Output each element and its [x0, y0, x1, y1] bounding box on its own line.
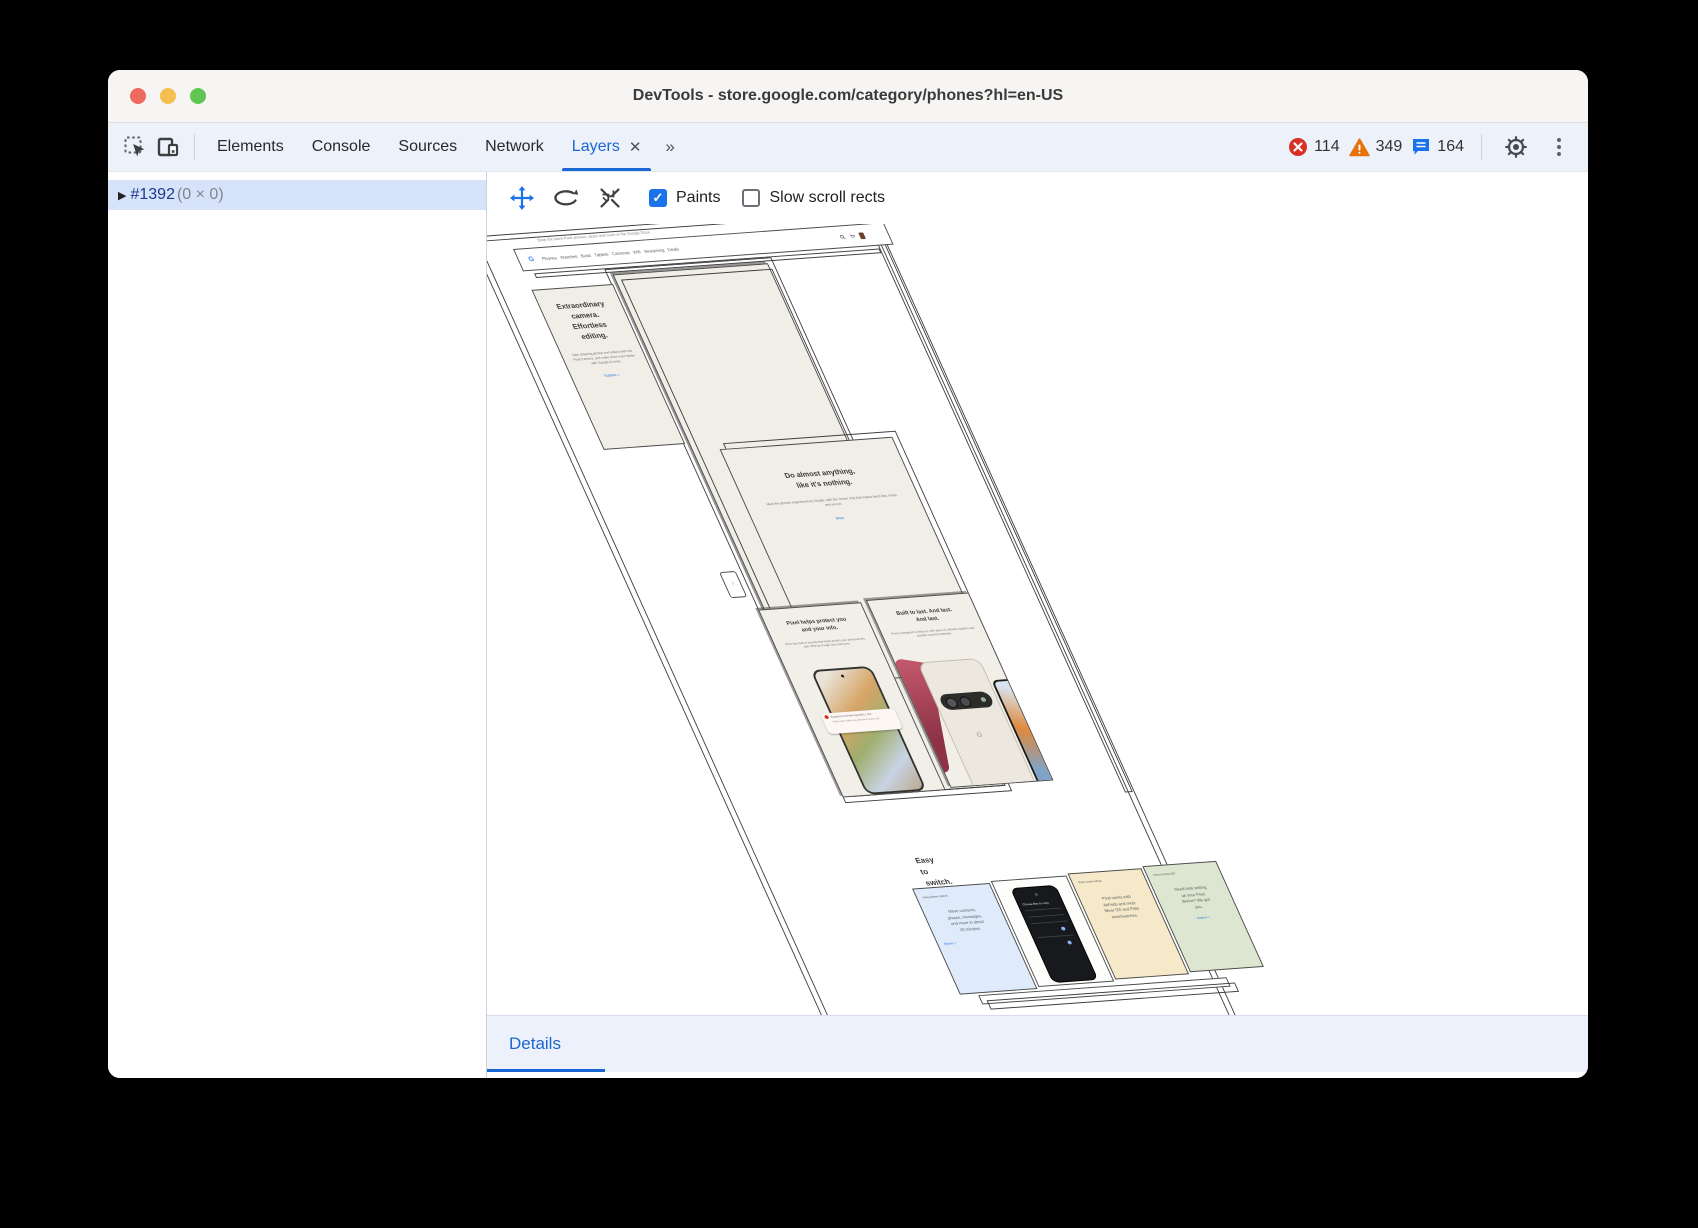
- bottom-strip: [487, 1072, 1588, 1078]
- help-card-link[interactable]: Explore >: [1173, 913, 1235, 921]
- warning-count: 349: [1376, 138, 1403, 156]
- more-tabs-icon[interactable]: »: [655, 137, 686, 157]
- tab-sources[interactable]: Sources: [384, 123, 471, 171]
- avatar: [858, 232, 866, 239]
- devtools-toolbar: Elements Console Sources Network Layers …: [108, 123, 1588, 172]
- setup-screen-title: Choose files to copy: [1022, 900, 1060, 906]
- toolbar-separator-2: [1481, 134, 1482, 160]
- layer-node-id: #1392: [130, 186, 175, 204]
- camera-card-heading: Extraordinary camera. Effortless editing…: [545, 298, 631, 343]
- navbar-links: Phones Watches Buds Tablets Cameras Wifi…: [541, 246, 680, 261]
- built-card-heading: Built to last. And last. And last.: [880, 605, 972, 627]
- tab-console[interactable]: Console: [298, 123, 385, 171]
- switch-card-link[interactable]: Explore >: [943, 937, 1009, 945]
- help-card-label: Here to help 24/7: [1152, 869, 1214, 877]
- message-count: 164: [1437, 138, 1464, 156]
- error-icon: [1288, 137, 1308, 157]
- google-g-logo: G: [976, 732, 984, 739]
- window-title: DevTools - store.google.com/category/pho…: [108, 87, 1588, 105]
- message-icon: [1411, 137, 1431, 157]
- details-bar: Details: [487, 1015, 1588, 1072]
- camera-card-body: Take amazing photos and videos with the …: [567, 348, 641, 367]
- pan-mode-icon[interactable]: [505, 181, 539, 215]
- layer-node-size: (0 × 0): [177, 186, 224, 204]
- inspect-element-icon[interactable]: [118, 130, 152, 164]
- accessories-card-body: Pixel works with AirPods and most Wear O…: [1085, 893, 1156, 922]
- reset-view-icon[interactable]: [593, 181, 627, 215]
- expand-caret-icon[interactable]: ▶: [118, 189, 126, 202]
- camera-lens-icon: [958, 696, 973, 707]
- cart-icon: [849, 234, 856, 239]
- anything-card-body: Meet the phones engineered by Google, wi…: [765, 493, 901, 512]
- anything-card-heading: Do almost anything, like it's nothing.: [751, 463, 892, 493]
- kebab-menu-icon[interactable]: [1542, 130, 1576, 164]
- device-toolbar-icon[interactable]: [152, 130, 186, 164]
- warning-icon: [1349, 138, 1370, 157]
- anything-card-link[interactable]: More: [773, 512, 907, 525]
- accessories-card-label: Pixel, meet extras: [1078, 876, 1140, 884]
- layers-view-toolbar: ✓ Paints Slow scroll rects: [487, 172, 1588, 224]
- details-tab-underline: [487, 1069, 605, 1072]
- settings-gear-icon[interactable]: [1499, 130, 1533, 164]
- tab-layers[interactable]: Layers ✕: [558, 123, 656, 171]
- panel-tabs: Elements Console Sources Network Layers …: [203, 123, 687, 171]
- switch-card-body: Move contacts, photos, messages, and mor…: [929, 906, 1004, 936]
- camera-lens-icon: [944, 697, 959, 708]
- rotate-mode-icon[interactable]: [549, 181, 583, 215]
- paints-label: Paints: [676, 189, 720, 207]
- help-card-body: Need help setting up your Pixel device? …: [1159, 884, 1230, 913]
- layers-3d-view[interactable]: Shop the latest Pixel phones, deals and …: [487, 224, 1588, 1015]
- message-badge[interactable]: 164: [1411, 137, 1464, 157]
- slow-scroll-label: Slow scroll rects: [769, 189, 885, 207]
- warning-dot-icon: [824, 715, 830, 719]
- slow-scroll-checkbox[interactable]: [742, 189, 760, 207]
- google-logo: G: [527, 256, 535, 263]
- tab-details[interactable]: Details: [509, 1016, 561, 1072]
- chat-icon: ?: [731, 582, 736, 588]
- layers-tree-sidebar: ▶ #1392 (0 × 0): [108, 172, 487, 1078]
- tab-network[interactable]: Network: [471, 123, 558, 171]
- camera-card-link[interactable]: Explore >: [577, 371, 647, 380]
- active-tab-underline: [562, 168, 652, 171]
- search-icon: [839, 234, 846, 239]
- protect-card-heading: Pixel helps protect you and your info.: [772, 615, 864, 637]
- protect-card-body: Pixel has built-in security that helps p…: [782, 636, 871, 651]
- camera-flash-icon: [980, 697, 987, 702]
- layer-tree-node-selected[interactable]: ▶ #1392 (0 × 0): [108, 180, 486, 210]
- error-badge[interactable]: 114: [1288, 137, 1340, 157]
- warning-badge[interactable]: 349: [1349, 138, 1403, 157]
- tab-elements[interactable]: Elements: [203, 123, 298, 171]
- close-tab-icon[interactable]: ✕: [629, 138, 642, 156]
- switch-card-label: Easy phone switch: [922, 891, 988, 899]
- devtools-window: DevTools - store.google.com/category/pho…: [108, 70, 1588, 1078]
- scam-notification: Suspicious Call Warning (555) 1 234 Like…: [820, 708, 903, 734]
- toolbar-separator: [194, 134, 195, 160]
- slow-scroll-checkbox-group: Slow scroll rects: [742, 189, 885, 207]
- title-bar: DevTools - store.google.com/category/pho…: [108, 70, 1588, 123]
- error-count: 114: [1314, 138, 1340, 156]
- paints-checkbox-group: ✓ Paints: [649, 189, 720, 207]
- built-card-body: Pixel is designed to keep up, with years…: [889, 626, 978, 641]
- paints-checkbox[interactable]: ✓: [649, 189, 667, 207]
